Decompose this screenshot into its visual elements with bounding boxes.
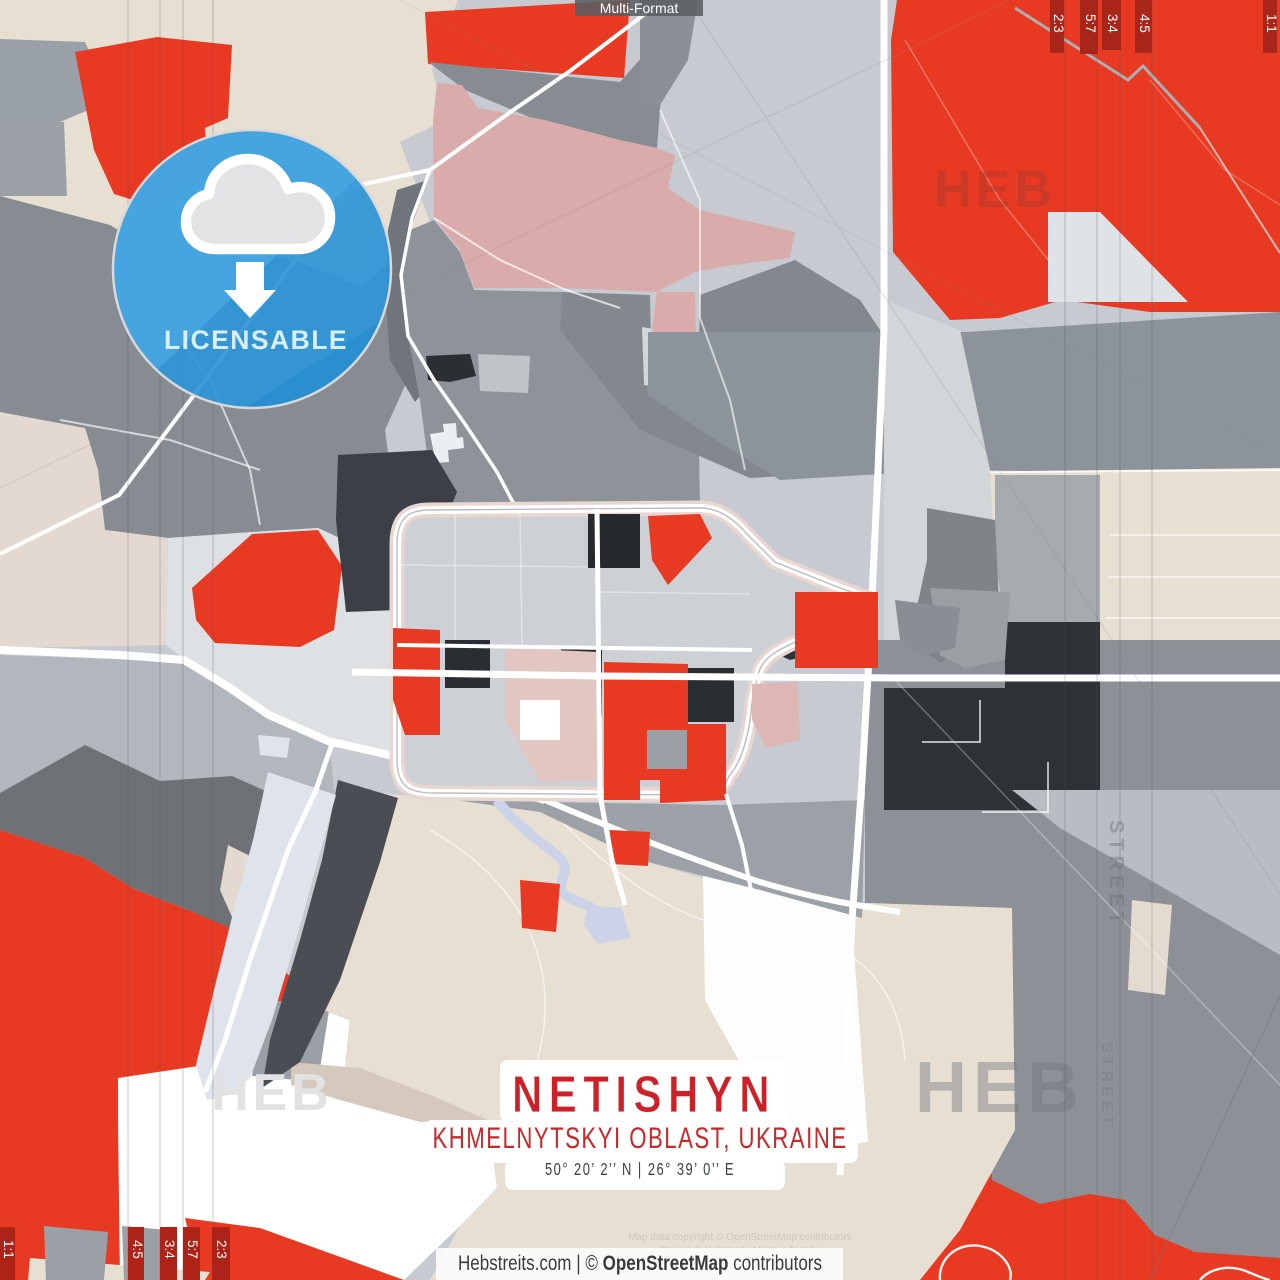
svg-text:LICENSABLE: LICENSABLE — [164, 325, 348, 355]
svg-text:STREET: STREET — [1105, 820, 1127, 929]
svg-text:3:4: 3:4 — [162, 1240, 177, 1259]
svg-text:1:1: 1:1 — [1264, 14, 1279, 33]
svg-text:KHMELNYTSKYI OBLAST, UKRAINE: KHMELNYTSKYI OBLAST, UKRAINE — [433, 1122, 848, 1155]
svg-text:HEB: HEB — [211, 1064, 333, 1122]
svg-text:HEB: HEB — [934, 161, 1056, 219]
svg-text:Multi-Format: Multi-Format — [600, 0, 679, 16]
svg-text:Map data copyright © OpenStree: Map data copyright © OpenStreetMap contr… — [628, 1232, 852, 1243]
svg-text:STREET: STREET — [1098, 1042, 1115, 1129]
svg-text:2:3: 2:3 — [1051, 14, 1066, 33]
svg-text:5:7: 5:7 — [1083, 14, 1098, 33]
svg-text:4:5: 4:5 — [130, 1240, 145, 1259]
svg-text:Hebstreits.com | © OpenStreetM: Hebstreits.com | © OpenStreetMap contrib… — [458, 1252, 822, 1275]
svg-text:HEB: HEB — [915, 1048, 1085, 1128]
svg-text:1:1: 1:1 — [1, 1240, 16, 1259]
svg-text:3:4: 3:4 — [1105, 14, 1120, 33]
svg-text:NETISHYN: NETISHYN — [512, 1066, 776, 1124]
svg-text:50° 20’ 2’’ N | 26° 39’: 50° 20’ 2’’ N | 26° 39’ 0’’ E — [545, 1159, 735, 1179]
svg-text:4:5: 4:5 — [1137, 14, 1152, 33]
svg-text:5:7: 5:7 — [185, 1240, 200, 1259]
svg-text:2:3: 2:3 — [214, 1240, 229, 1259]
